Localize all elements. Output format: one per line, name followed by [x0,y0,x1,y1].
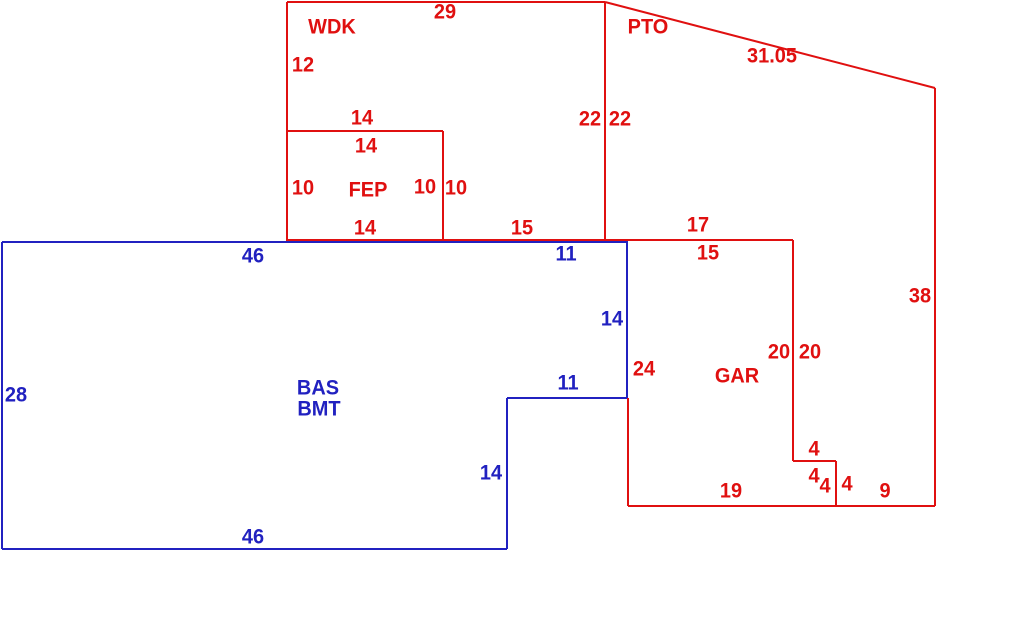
dimension-label: 14 [354,218,376,239]
sketch-canvas: 29WDKPTO31.05121422221410FEP101014151746… [0,0,1010,623]
area-label: FEP [349,180,388,201]
dimension-label: 19 [720,481,742,502]
dimension-label: 22 [609,109,631,130]
dimension-label: 14 [351,108,373,129]
area-label: GAR [715,366,759,387]
dimension-label: 20 [768,342,790,363]
dimension-label: 15 [697,243,719,264]
area-label: BAS [297,378,339,399]
dimension-label: 46 [242,527,264,548]
dimension-label: 17 [687,215,709,236]
dimension-label: 24 [633,359,655,380]
dimension-label: 12 [292,55,314,76]
dimension-label: 14 [355,136,377,157]
dimension-label: 11 [555,244,576,265]
dimension-label: 46 [242,246,264,267]
dimension-label: 14 [480,463,502,484]
dimension-label: 22 [579,109,601,130]
area-label: WDK [308,17,356,38]
dimension-label: 14 [601,309,623,330]
dimension-label: 4 [841,474,852,495]
dimension-label: 10 [445,178,467,199]
dimension-label: 10 [414,177,436,198]
dimension-label: 4 [819,476,830,497]
dimension-label: 20 [799,342,821,363]
dimension-label: 4 [808,466,819,487]
area-label: PTO [628,17,669,38]
dimension-label: 10 [292,178,314,199]
area-label: BMT [297,399,340,420]
dimension-label: 28 [5,385,27,406]
dimension-label: 4 [808,439,819,460]
dimension-label: 9 [879,481,890,502]
dimension-label: 11 [557,373,578,394]
dimension-label: 15 [511,218,533,239]
dimension-label: 31.05 [747,46,797,67]
sketch-lines [0,0,1010,623]
dimension-label: 29 [434,2,456,23]
dimension-label: 38 [909,286,931,307]
